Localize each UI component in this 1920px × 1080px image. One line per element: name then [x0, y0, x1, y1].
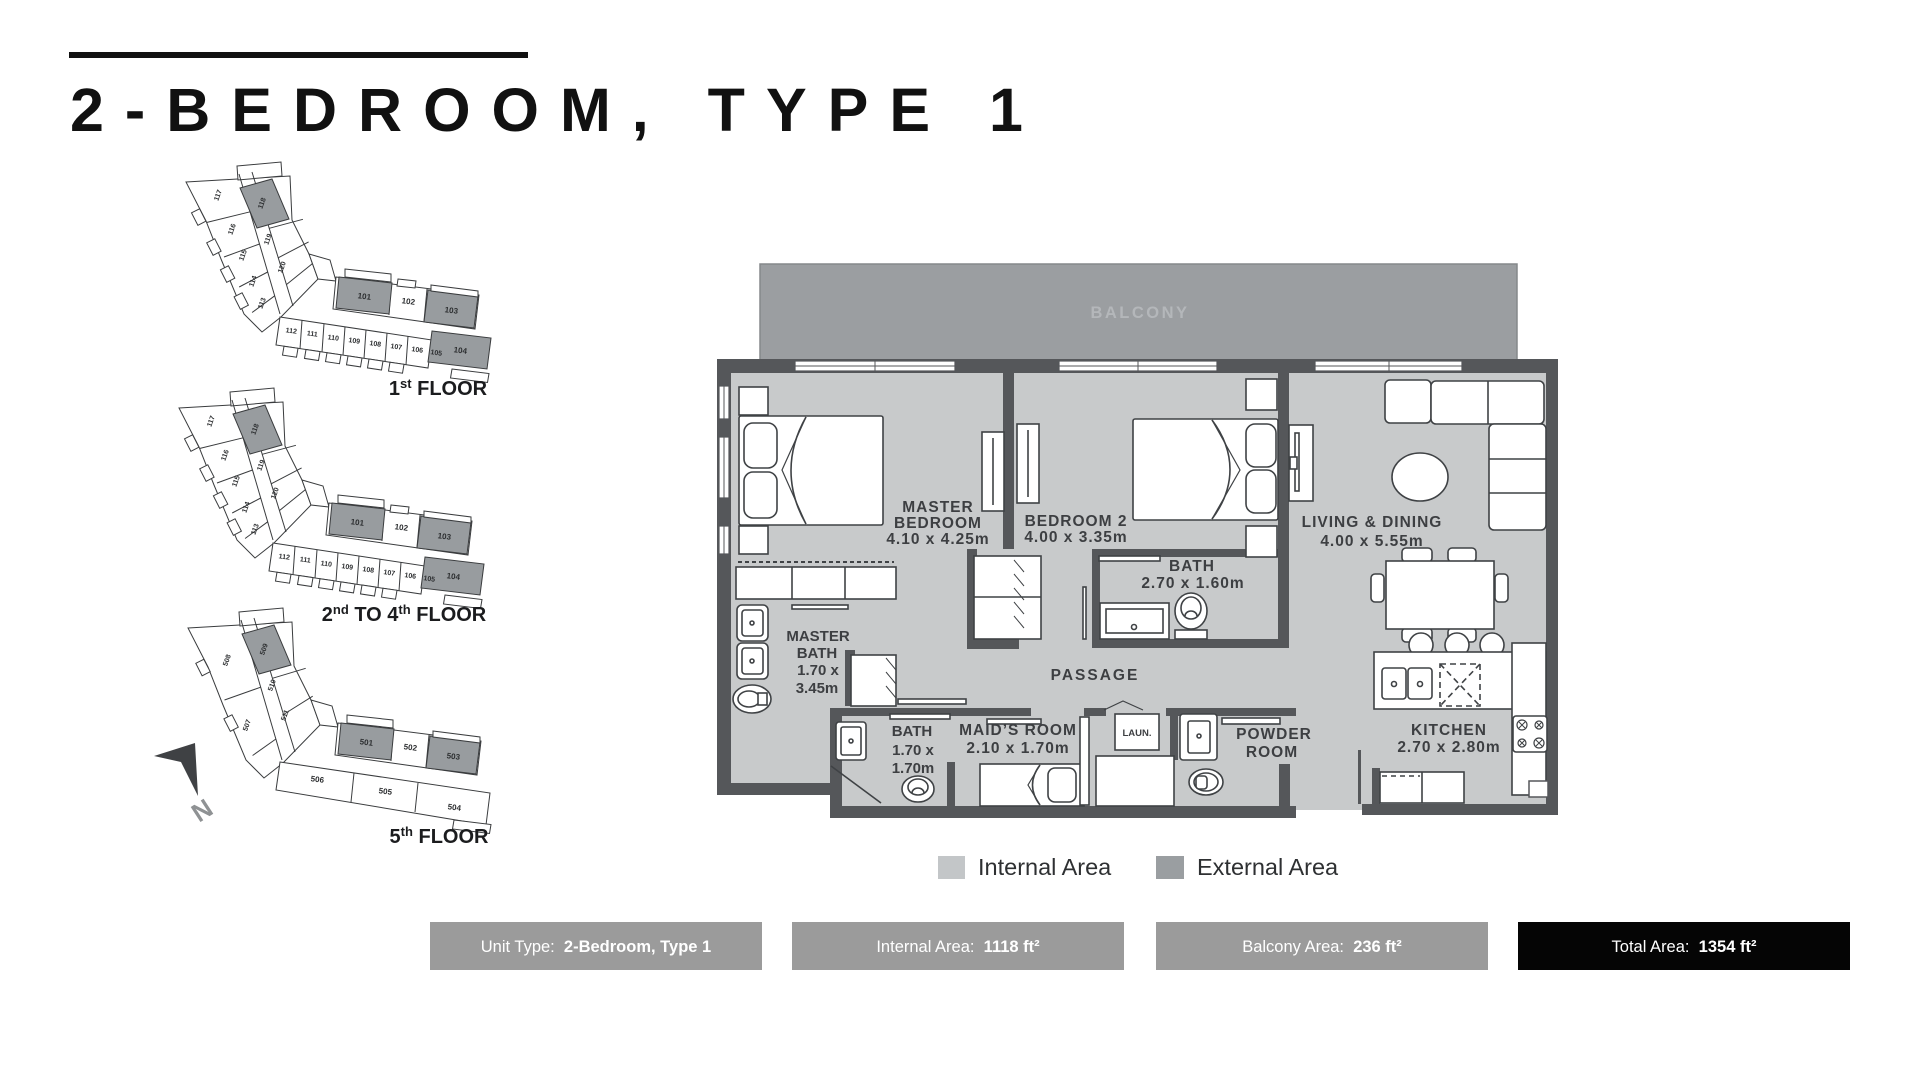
svg-text:External Area: External Area: [1197, 854, 1339, 880]
svg-text:501: 501: [359, 737, 374, 748]
svg-text:KITCHEN: KITCHEN: [1411, 722, 1487, 739]
svg-text:2.70 x 2.80m: 2.70 x 2.80m: [1397, 739, 1500, 756]
svg-text:PASSAGE: PASSAGE: [1051, 667, 1140, 684]
svg-text:POWDER: POWDER: [1236, 726, 1312, 743]
svg-text:BATH: BATH: [1169, 558, 1215, 575]
svg-text:Total Area: 1354 ft²: Total Area: 1354 ft²: [1612, 938, 1757, 956]
svg-text:BEDROOM: BEDROOM: [894, 515, 982, 532]
svg-text:1.70 x: 1.70 x: [892, 742, 934, 759]
svg-text:4.00 x 3.35m: 4.00 x 3.35m: [1024, 529, 1127, 546]
svg-text:BATH: BATH: [892, 723, 933, 740]
svg-text:103: 103: [444, 305, 459, 316]
svg-text:2.70 x 1.60m: 2.70 x 1.60m: [1141, 575, 1244, 592]
svg-text:MAID’S ROOM: MAID’S ROOM: [959, 722, 1077, 739]
svg-text:Internal Area: Internal Area: [978, 854, 1112, 880]
svg-text:MASTER: MASTER: [786, 628, 850, 645]
svg-text:Balcony Area: 236 ft²: Balcony Area: 236 ft²: [1242, 938, 1402, 956]
svg-text:502: 502: [403, 742, 418, 753]
svg-text:1.70m: 1.70m: [892, 760, 935, 777]
svg-text:3.45m: 3.45m: [796, 680, 839, 697]
svg-text:1st FLOOR: 1st FLOOR: [389, 376, 488, 400]
svg-text:N: N: [186, 793, 218, 828]
svg-text:4.10 x 4.25m: 4.10 x 4.25m: [886, 531, 989, 548]
svg-text:MASTER: MASTER: [902, 499, 973, 516]
svg-text:2nd TO 4th FLOOR: 2nd TO 4th FLOOR: [322, 602, 487, 626]
svg-text:5th FLOOR: 5th FLOOR: [390, 824, 490, 848]
svg-text:Unit Type: 2-Bedroom, Type 1: Unit Type: 2-Bedroom, Type 1: [481, 938, 711, 956]
svg-text:104: 104: [453, 345, 468, 356]
svg-text:504: 504: [447, 802, 462, 813]
svg-text:BATH: BATH: [797, 645, 838, 662]
svg-text:LIVING & DINING: LIVING & DINING: [1302, 514, 1443, 531]
svg-text:2.10 x 1.70m: 2.10 x 1.70m: [966, 740, 1069, 757]
svg-text:102: 102: [401, 296, 416, 307]
svg-text:LAUN.: LAUN.: [1122, 728, 1151, 739]
svg-text:ROOM: ROOM: [1246, 744, 1298, 761]
svg-text:101: 101: [357, 291, 372, 302]
svg-text:2-BEDROOM, TYPE 1: 2-BEDROOM, TYPE 1: [70, 76, 1044, 144]
svg-text:4.00 x 5.55m: 4.00 x 5.55m: [1320, 533, 1423, 550]
svg-text:503: 503: [446, 751, 461, 762]
svg-text:BEDROOM 2: BEDROOM 2: [1025, 513, 1128, 530]
svg-text:Internal Area: 1118 ft²: Internal Area: 1118 ft²: [876, 938, 1040, 956]
svg-text:506: 506: [310, 774, 325, 785]
svg-text:BALCONY: BALCONY: [1090, 304, 1189, 322]
svg-text:1.70 x: 1.70 x: [797, 662, 839, 679]
svg-text:505: 505: [378, 786, 393, 797]
